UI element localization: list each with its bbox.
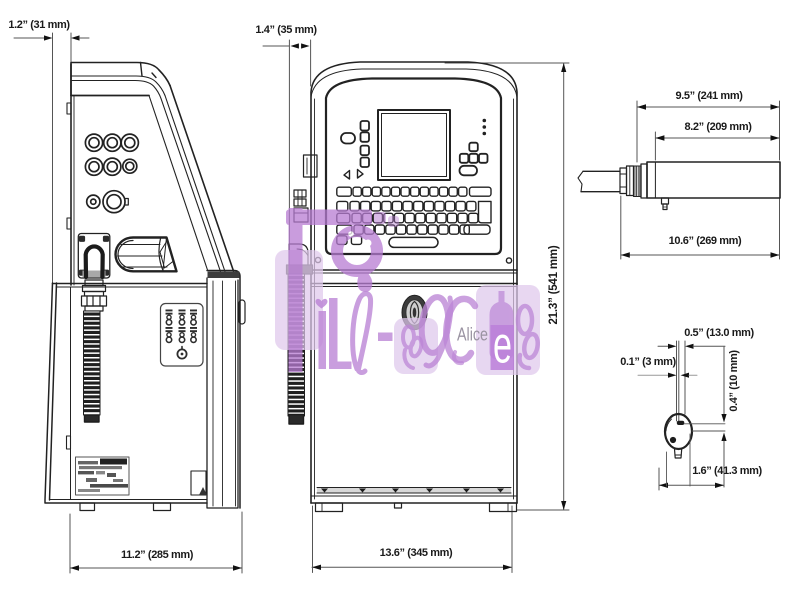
svg-text:1.4” (35 mm): 1.4” (35 mm) (255, 24, 317, 36)
svg-text:10.6” (269 mm): 10.6” (269 mm) (669, 235, 742, 247)
svg-text:11.2” (285 mm): 11.2” (285 mm) (121, 549, 194, 561)
svg-text:1.2” (31 mm): 1.2” (31 mm) (8, 19, 70, 31)
svg-text:0.4” (10 mm): 0.4” (10 mm) (728, 350, 740, 412)
svg-text:1.6” (41.3 mm): 1.6” (41.3 mm) (692, 465, 762, 477)
svg-text:13.6” (345 mm): 13.6” (345 mm) (380, 547, 453, 559)
svg-text:9.5” (241 mm): 9.5” (241 mm) (676, 90, 744, 102)
svg-text:21.3” (541 mm): 21.3” (541 mm) (548, 245, 560, 324)
svg-text:0.5” (13.0 mm): 0.5” (13.0 mm) (684, 327, 754, 339)
svg-text:e: e (493, 317, 512, 375)
svg-text:8.2” (209 mm): 8.2” (209 mm) (685, 121, 753, 133)
svg-text:0.1” (3 mm): 0.1” (3 mm) (620, 356, 676, 368)
svg-text:Alice: Alice (457, 324, 488, 345)
